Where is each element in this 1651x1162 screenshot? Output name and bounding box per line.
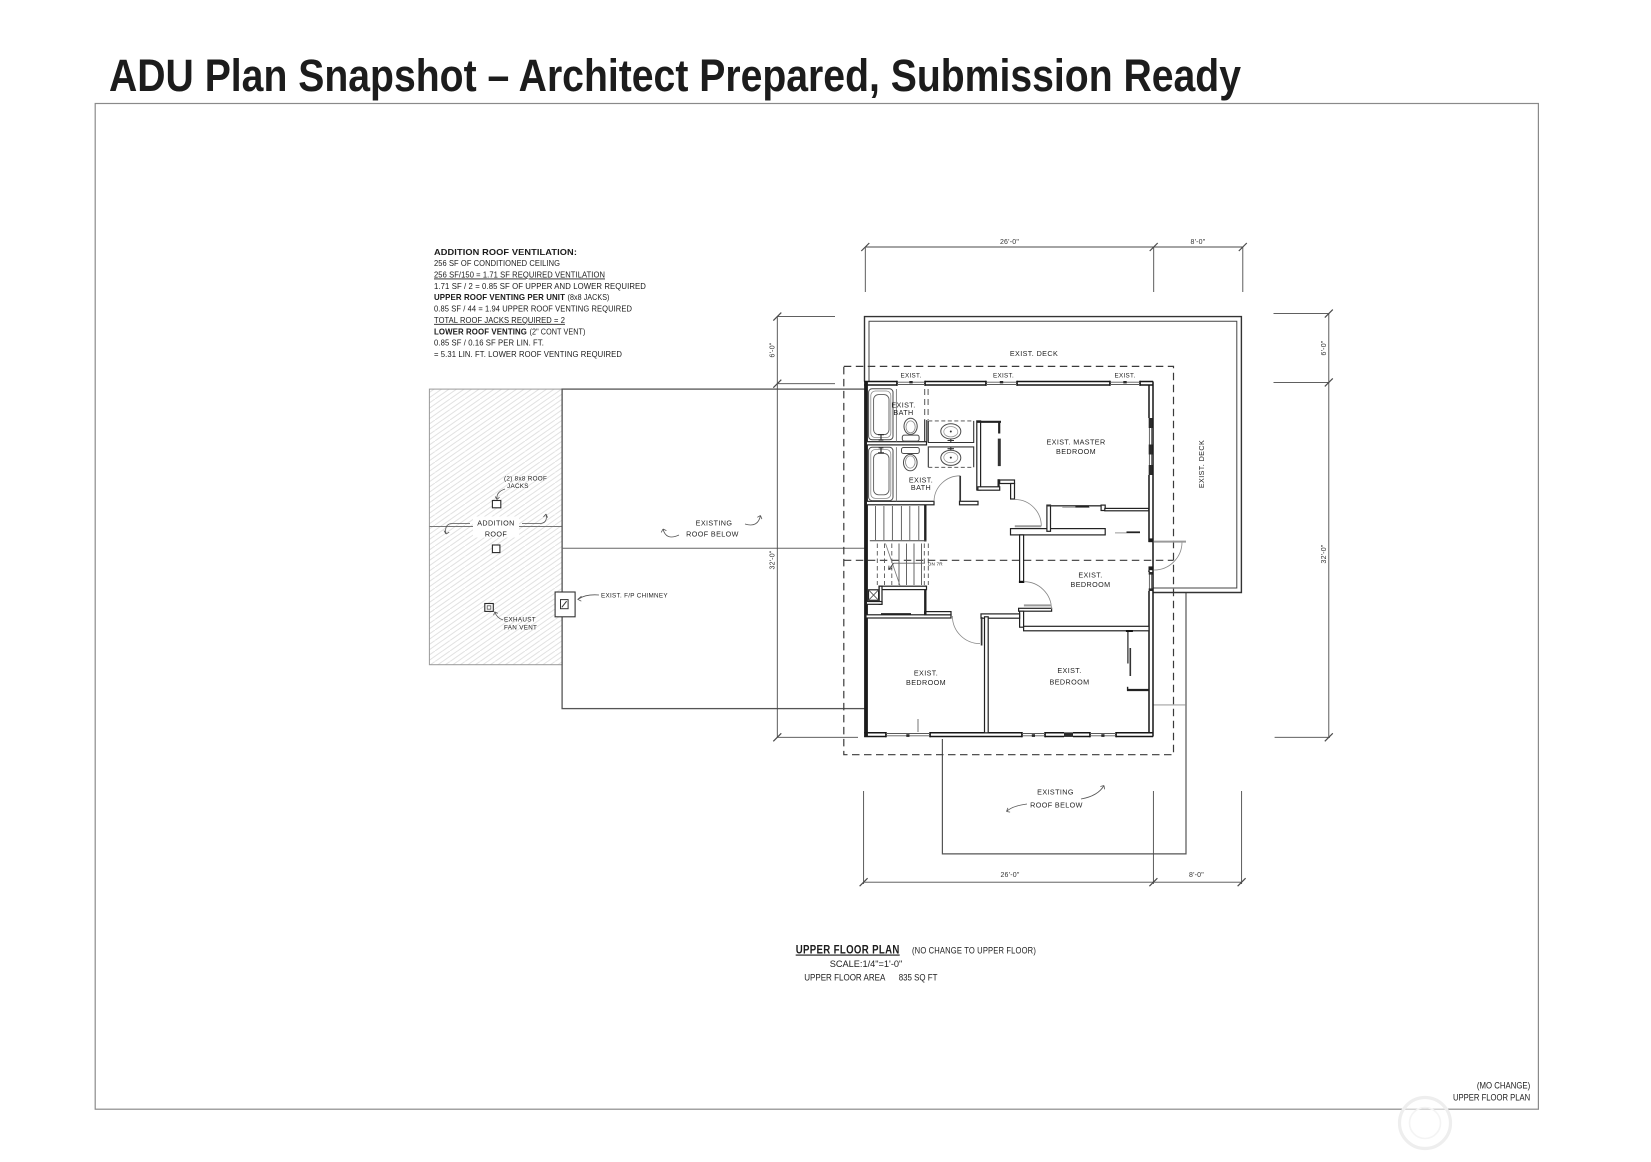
svg-text:ADDITION: ADDITION	[477, 519, 515, 528]
svg-text:UPPER ROOF VENTING PER UNIT: UPPER ROOF VENTING PER UNIT	[434, 292, 566, 302]
svg-text:1.71 SF / 2 = 0.85 SF OF UPP: 1.71 SF / 2 = 0.85 SF OF UPPER AND LOWER…	[434, 281, 646, 291]
svg-text:BEDROOM: BEDROOM	[1071, 580, 1111, 589]
svg-text:EXHAUST: EXHAUST	[504, 617, 536, 624]
svg-text:ADDITION ROOF VENTILATION:: ADDITION ROOF VENTILATION:	[434, 247, 577, 257]
svg-text:8'-0": 8'-0"	[1189, 872, 1204, 879]
svg-text:0.85 SF / 0.16 SF PER LIN. FT.: 0.85 SF / 0.16 SF PER LIN. FT.	[434, 338, 544, 348]
svg-text:BATH: BATH	[911, 483, 931, 492]
svg-text:6'-0": 6'-0"	[1321, 340, 1328, 355]
svg-text:EXIST. F/P CHIMNEY: EXIST. F/P CHIMNEY	[601, 593, 668, 600]
svg-text:26'-0": 26'-0"	[1000, 872, 1019, 879]
svg-text:32'-0": 32'-0"	[1321, 544, 1328, 563]
svg-text:EXIST.: EXIST.	[1114, 373, 1135, 380]
svg-text:= 5.31 LIN. FT. LOWER ROOF VEN: = 5.31 LIN. FT. LOWER ROOF VENTING REQUI…	[434, 349, 622, 359]
svg-text:BEDROOM: BEDROOM	[1056, 447, 1096, 456]
svg-text:835 SQ FT: 835 SQ FT	[899, 972, 938, 982]
svg-text:(MO CHANGE): (MO CHANGE)	[1477, 1080, 1530, 1090]
svg-text:6'-0": 6'-0"	[770, 342, 777, 357]
svg-text:BEDROOM: BEDROOM	[906, 678, 946, 687]
svg-text:256 SF OF CONDITIONED CEILING: 256 SF OF CONDITIONED CEILING	[434, 258, 560, 268]
svg-text:EXIST.: EXIST.	[900, 373, 921, 380]
svg-text:(NO CHANGE TO UPPER FLOOR): (NO CHANGE TO UPPER FLOOR)	[912, 946, 1036, 957]
svg-text:256 SF/150 = 1.71 SF REQUIRED: 256 SF/150 = 1.71 SF REQUIRED VENTILATIO…	[434, 270, 605, 280]
svg-text:DN 7R: DN 7R	[928, 562, 943, 567]
svg-text:EXIST.: EXIST.	[1057, 666, 1081, 675]
svg-text:EXIST.: EXIST.	[914, 669, 938, 678]
svg-text:ROOF BELOW: ROOF BELOW	[1030, 801, 1083, 810]
svg-text:ADU Plan Snapshot – Architect: ADU Plan Snapshot – Architect Prepared, …	[109, 50, 1241, 101]
svg-text:BEDROOM: BEDROOM	[1050, 678, 1090, 687]
svg-text:(2) 8x8 ROOF: (2) 8x8 ROOF	[504, 476, 547, 483]
svg-text:SCALE:1/4"=1'-0": SCALE:1/4"=1'-0"	[830, 958, 903, 969]
svg-text:TOTAL ROOF JACKS REQUIRED = 2: TOTAL ROOF JACKS REQUIRED = 2	[434, 315, 565, 325]
svg-text:EXISTING: EXISTING	[696, 519, 733, 528]
svg-text:EXIST. DECK: EXIST. DECK	[1197, 440, 1206, 488]
svg-text:EXIST. MASTER: EXIST. MASTER	[1046, 438, 1105, 447]
svg-text:UPPER FLOOR PLAN: UPPER FLOOR PLAN	[1453, 1092, 1530, 1102]
svg-text:JACKS: JACKS	[507, 483, 529, 490]
svg-text:0.85 SF / 44 = 1.94 UPPER ROOF: 0.85 SF / 44 = 1.94 UPPER ROOF VENTING R…	[434, 304, 632, 314]
svg-text:26'-0": 26'-0"	[1000, 239, 1019, 246]
svg-text:ROOF BELOW: ROOF BELOW	[686, 530, 739, 539]
svg-text:8'-0": 8'-0"	[1191, 239, 1206, 246]
svg-text:LOWER ROOF VENTING: LOWER ROOF VENTING	[434, 326, 527, 336]
svg-text:EXIST. DECK: EXIST. DECK	[1010, 349, 1058, 358]
svg-text:32'-0": 32'-0"	[770, 550, 777, 569]
svg-text:(8x8 JACKS): (8x8 JACKS)	[568, 292, 610, 302]
svg-text:UPPER FLOOR PLAN: UPPER FLOOR PLAN	[796, 945, 900, 957]
svg-text:EXISTING: EXISTING	[1037, 788, 1074, 797]
svg-text:(2" CONT VENT): (2" CONT VENT)	[530, 326, 586, 336]
svg-text:UPPER FLOOR AREA: UPPER FLOOR AREA	[804, 972, 885, 982]
svg-text:FAN VENT: FAN VENT	[504, 625, 537, 632]
svg-text:EXIST.: EXIST.	[993, 373, 1014, 380]
svg-text:BATH: BATH	[893, 408, 913, 417]
svg-text:ROOF: ROOF	[485, 530, 508, 539]
svg-text:EXIST.: EXIST.	[1078, 571, 1102, 580]
